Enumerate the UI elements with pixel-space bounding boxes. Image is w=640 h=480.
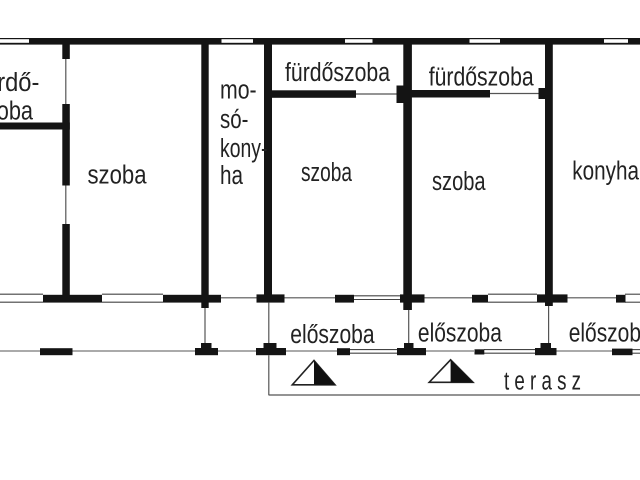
svg-text:fürdő-: fürdő- [0,69,39,97]
svg-text:szoba: szoba [432,168,486,196]
svg-text:fürdőszoba: fürdőszoba [429,64,535,92]
svg-text:ha: ha [220,162,244,190]
svg-text:előszoba: előszoba [569,320,640,348]
svg-text:kony-: kony- [220,135,267,163]
svg-text:előszoba: előszoba [418,320,503,348]
svg-text:előszoba: előszoba [290,321,375,349]
svg-text:szoba: szoba [88,162,148,190]
svg-text:szoba: szoba [0,98,34,126]
svg-text:só-: só- [220,106,248,134]
svg-text:szoba: szoba [301,159,353,187]
svg-text:konyha: konyha [572,158,639,186]
svg-text:t e r a s z: t e r a s z [504,368,581,396]
svg-text:fürdőszoba: fürdőszoba [285,59,391,87]
svg-text:mo-: mo- [220,77,257,105]
